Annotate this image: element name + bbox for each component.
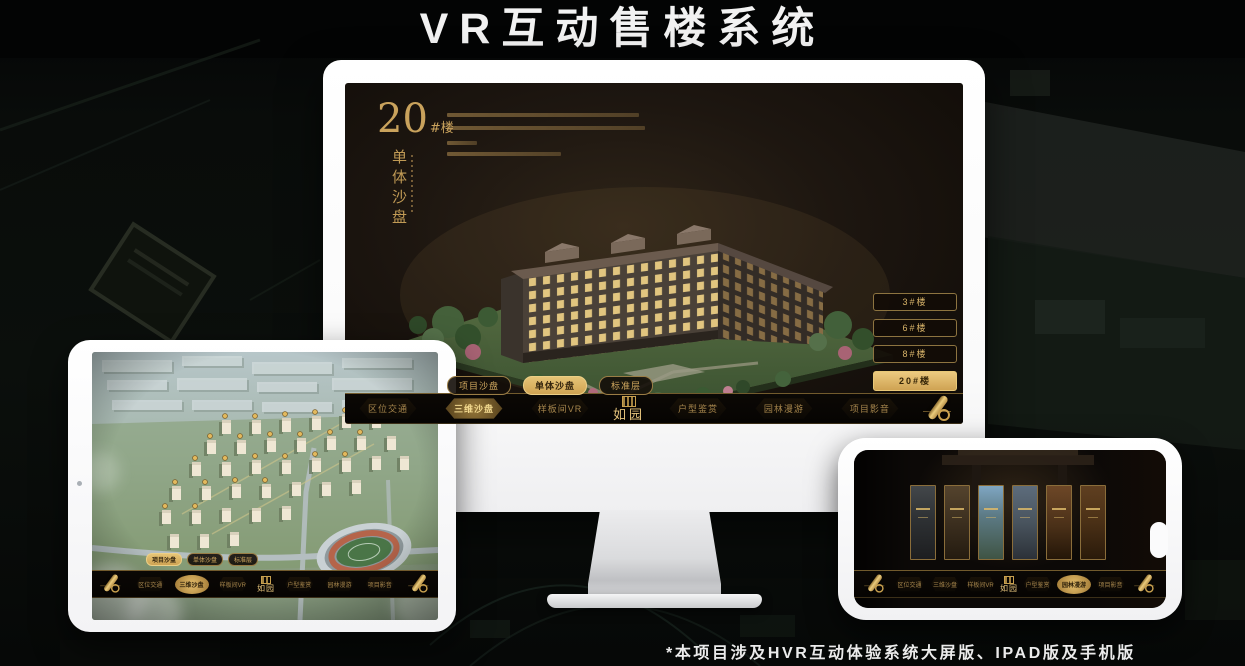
scene-panel[interactable] xyxy=(1080,485,1106,560)
page-title: VR互动售楼系统 xyxy=(0,0,1245,58)
phone-screen: 区位交通 三维沙盘 样板间VR 如园 户型鉴赏 园林漫游 项目影音 xyxy=(854,450,1166,608)
ruyuan-seal-icon xyxy=(622,396,636,407)
phone-ruyuan-logo-text: 如园 xyxy=(1000,585,1018,593)
phone-scroll-icon-left[interactable] xyxy=(864,575,886,594)
phone-nav-location-traffic[interactable]: 区位交通 xyxy=(894,577,926,592)
tablet-tab-standard-floor[interactable]: 标准层 xyxy=(228,553,258,566)
scroll-menu-icon[interactable] xyxy=(923,396,953,422)
phone-device: 区位交通 三维沙盘 样板间VR 如园 户型鉴赏 园林漫游 项目影音 xyxy=(838,438,1182,620)
phone-ruyuan-logo: 如园 xyxy=(1000,576,1018,593)
tablet-nav-3d-sandbox[interactable]: 三维沙盘 xyxy=(175,575,209,594)
tablet-nav-garden-tour[interactable]: 园林漫游 xyxy=(324,577,356,592)
floor-button-group: 3#楼 6#楼 8#楼 20#楼 xyxy=(873,293,957,391)
monitor-stand xyxy=(588,510,721,598)
scene-panel[interactable] xyxy=(910,485,936,560)
tablet-tab-project-sandbox[interactable]: 项目沙盘 xyxy=(146,553,182,566)
tablet-ruyuan-logo: 如园 xyxy=(257,576,275,593)
nav-garden-tour[interactable]: 园林漫游 xyxy=(751,398,817,419)
tablet-tab-single-sandbox[interactable]: 单体沙盘 xyxy=(187,553,223,566)
tab-single-sandbox[interactable]: 单体沙盘 xyxy=(523,376,587,395)
screen-subtabs: 项目沙盘 单体沙盘 标准层 xyxy=(447,376,653,395)
tablet-ruyuan-logo-text: 如园 xyxy=(257,585,275,593)
scene-panel[interactable] xyxy=(1046,485,1072,560)
screen-headline: 20#楼 xyxy=(377,97,454,141)
tablet-device: 项目沙盘 单体沙盘 标准层 区位交通 三维沙盘 样板间VR 如园 户型鉴赏 园林… xyxy=(68,340,456,632)
monitor-stand-base xyxy=(547,594,762,608)
scene-panel[interactable] xyxy=(944,485,970,560)
phone-nav-project-media[interactable]: 项目影音 xyxy=(1095,577,1127,592)
nav-3d-sandbox[interactable]: 三维沙盘 xyxy=(441,398,507,419)
phone-nav-3d-sandbox[interactable]: 三维沙盘 xyxy=(929,577,961,592)
floor-button-3[interactable]: 3#楼 xyxy=(873,293,957,311)
tab-standard-floor[interactable]: 标准层 xyxy=(599,376,653,395)
desc-line xyxy=(447,152,561,156)
tablet-subtabs: 项目沙盘 单体沙盘 标准层 xyxy=(146,553,258,566)
tablet-scroll-icon-right[interactable] xyxy=(408,575,430,594)
desc-line xyxy=(447,141,477,145)
tablet-nav-project-media[interactable]: 项目影音 xyxy=(364,577,396,592)
phone-navbar: 区位交通 三维沙盘 样板间VR 如园 户型鉴赏 园林漫游 项目影音 xyxy=(854,570,1166,598)
gate-beam-silhouette xyxy=(942,455,1094,465)
floor-button-6[interactable]: 6#楼 xyxy=(873,319,957,337)
scene-panel[interactable] xyxy=(1012,485,1038,560)
scene-panel-strip xyxy=(910,485,1106,560)
desc-line xyxy=(447,126,645,130)
stage: VR互动售楼系统 20#楼 单体沙盘 xyxy=(0,0,1245,666)
tablet-nav-model-room-vr[interactable]: 样板间VR xyxy=(217,577,249,592)
tab-project-sandbox[interactable]: 项目沙盘 xyxy=(447,376,511,395)
phone-nav-floorplan-gallery[interactable]: 户型鉴赏 xyxy=(1022,577,1054,592)
ruyuan-logo-text: 如园 xyxy=(613,409,645,422)
tablet-navbar: 区位交通 三维沙盘 样板间VR 如园 户型鉴赏 园林漫游 项目影音 xyxy=(92,570,438,598)
tablet-ruyuan-seal-icon xyxy=(261,576,271,584)
footnote: *本项目涉及HVR互动体验系统大屏版、IPAD版及手机版 xyxy=(666,639,1136,663)
phone-scroll-icon-right[interactable] xyxy=(1134,575,1156,594)
phone-nav-garden-tour[interactable]: 园林漫游 xyxy=(1057,575,1091,594)
desc-line xyxy=(447,113,639,117)
phone-ruyuan-seal-icon xyxy=(1004,576,1014,584)
floor-button-20[interactable]: 20#楼 xyxy=(873,371,957,391)
nav-location-traffic[interactable]: 区位交通 xyxy=(355,398,421,419)
scene-panel[interactable] xyxy=(978,485,1004,560)
phone-notch xyxy=(1150,522,1168,558)
nav-floorplan-gallery[interactable]: 户型鉴赏 xyxy=(665,398,731,419)
ruyuan-logo: 如园 xyxy=(613,396,645,422)
screen-navbar: 区位交通 三维沙盘 样板间VR 如园 户型鉴赏 园林漫游 项目影音 xyxy=(345,393,963,424)
tablet-nav-location-traffic[interactable]: 区位交通 xyxy=(134,577,166,592)
tablet-nav-floorplan-gallery[interactable]: 户型鉴赏 xyxy=(283,577,315,592)
tablet-camera-icon xyxy=(77,481,82,486)
phone-nav-model-room-vr[interactable]: 样板间VR xyxy=(965,577,997,592)
floor-button-8[interactable]: 8#楼 xyxy=(873,345,957,363)
nav-model-room-vr[interactable]: 样板间VR xyxy=(527,398,593,419)
tablet-scroll-icon-left[interactable] xyxy=(100,575,122,594)
nav-project-media[interactable]: 项目影音 xyxy=(837,398,903,419)
headline-number: 20 xyxy=(377,97,428,141)
